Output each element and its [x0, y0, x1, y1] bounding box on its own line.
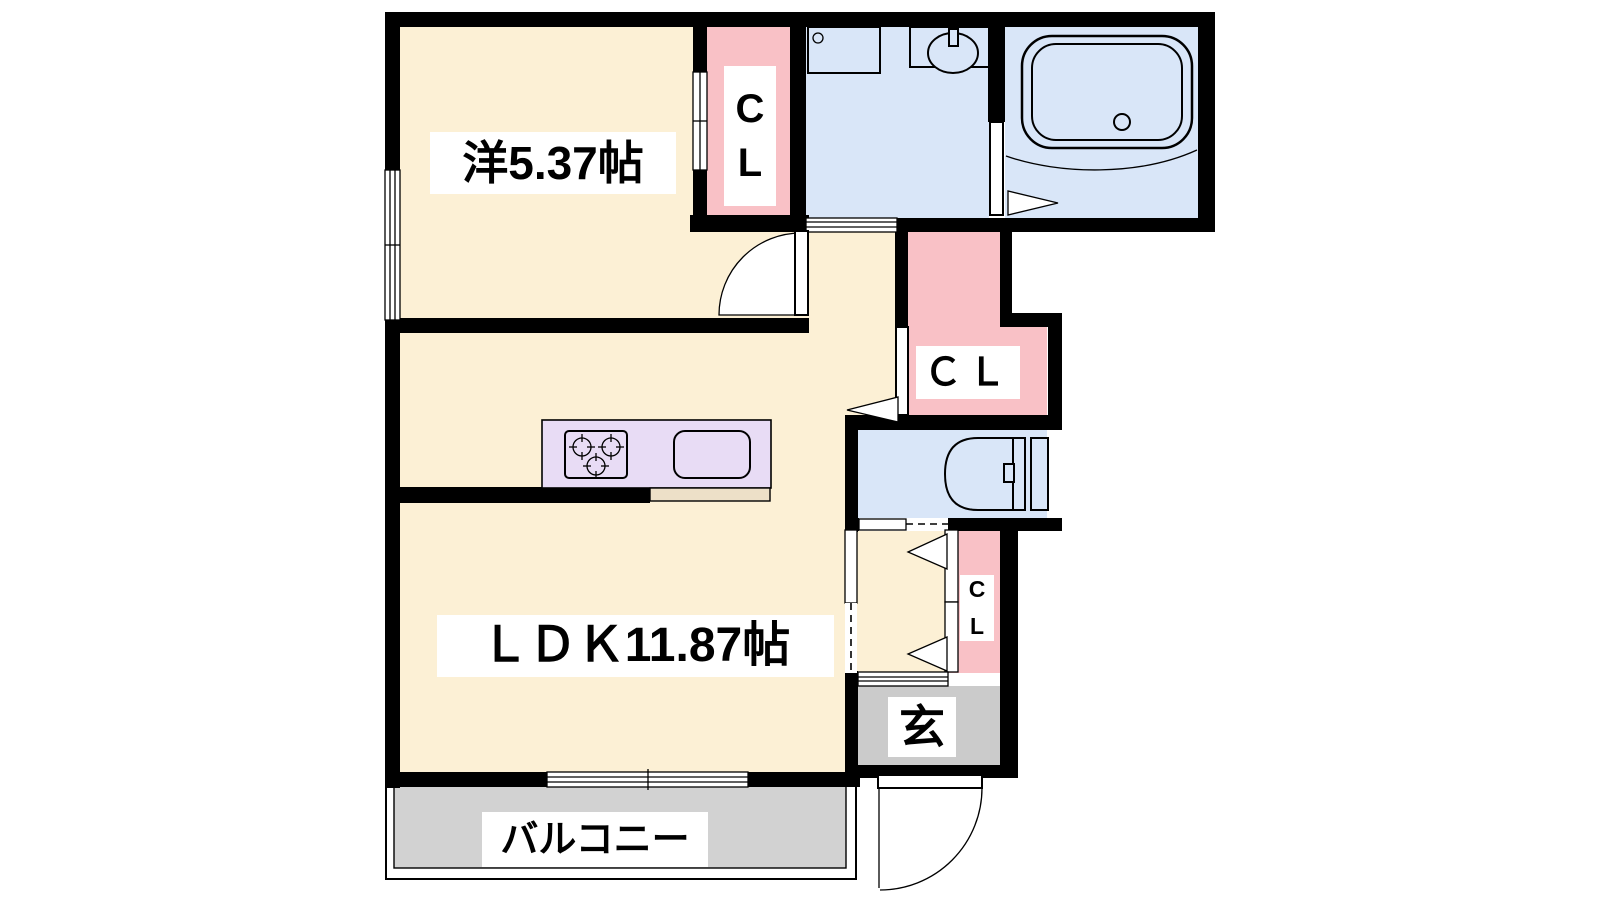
entrance-door-swing: [878, 775, 982, 890]
closet-top-label-line1: C: [736, 89, 765, 129]
closet-small-label-line2: L: [970, 615, 984, 638]
bedroom-window: [385, 170, 400, 320]
bedroom-label: 洋5.37帖: [430, 132, 676, 194]
toilet-icon: [945, 438, 1048, 510]
entrance-threshold: [858, 672, 948, 686]
balcony-sliding-window: [547, 769, 748, 790]
closet-small-label: C L: [960, 575, 994, 641]
washroom-sliding-door: [806, 218, 897, 232]
ldk-label: ＬＤＫ11.87帖: [437, 615, 834, 677]
balcony-label: バルコニー: [482, 812, 708, 867]
closet-small-label-line1: C: [969, 578, 986, 601]
entrance-label: 玄: [888, 697, 956, 757]
closet-top-sliding-door: [693, 72, 707, 170]
ldk-hall-sliding-door: [845, 530, 857, 673]
closet-middle-floor-upper: [908, 230, 1001, 315]
toilet-door: [859, 518, 948, 531]
closet-top-label: C L: [724, 66, 776, 206]
closet-middle-label: ＣＬ: [916, 346, 1020, 399]
floor-plan-drawing: [0, 0, 1600, 900]
floor-plan: 洋5.37帖 C L ＣＬ C L ＬＤＫ11.87帖 玄 バルコニー: [0, 0, 1600, 900]
ldk-floor: [398, 333, 848, 775]
counter-ledge: [650, 488, 770, 501]
closet-top-label-line2: L: [738, 143, 762, 183]
